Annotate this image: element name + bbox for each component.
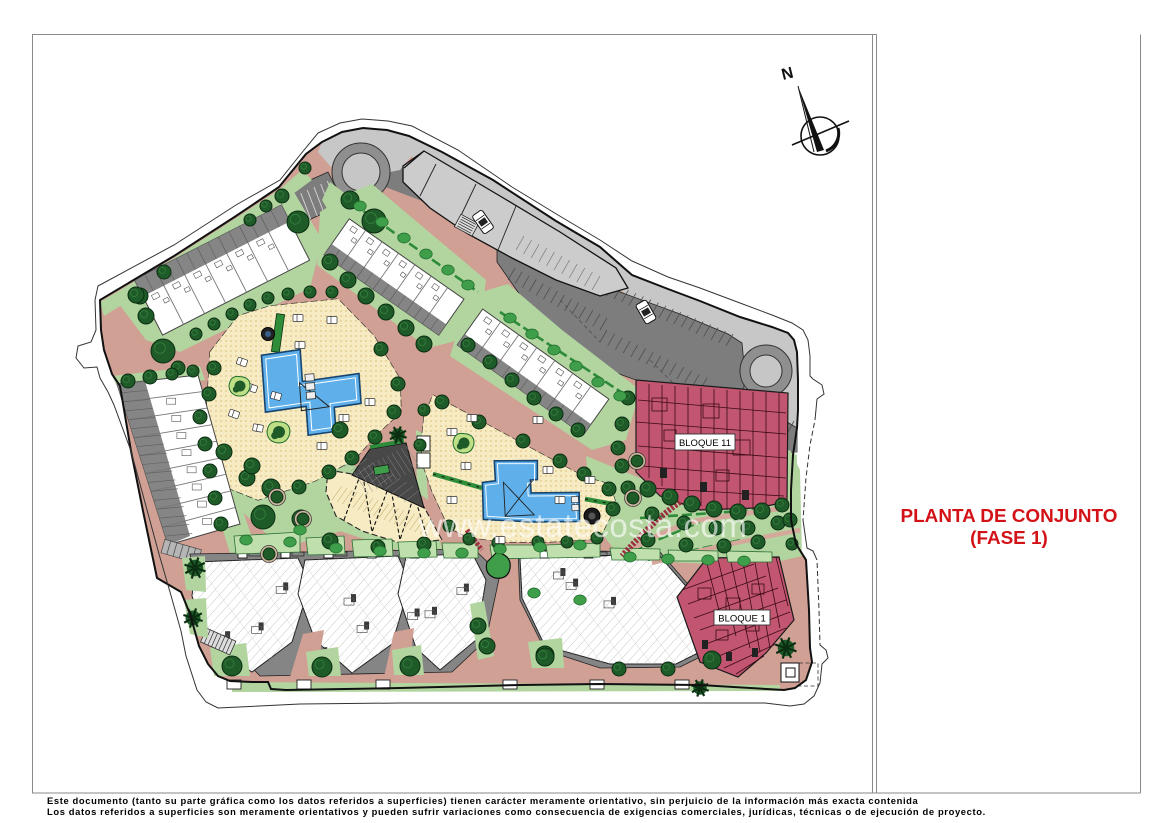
svg-text:www.estatecosta.com: www.estatecosta.com: [418, 507, 748, 544]
svg-text:Este documento (tanto su parte: Este documento (tanto su parte gráfica c…: [47, 795, 919, 806]
svg-text:Los datos referidos a superfic: Los datos referidos a superficies son me…: [47, 806, 986, 817]
svg-text:(FASE 1): (FASE 1): [970, 528, 1048, 549]
svg-text:PLANTA DE CONJUNTO: PLANTA DE CONJUNTO: [901, 506, 1118, 527]
svg-text:BLOQUE 11: BLOQUE 11: [679, 438, 731, 449]
svg-text:BLOQUE 1: BLOQUE 1: [718, 614, 766, 625]
